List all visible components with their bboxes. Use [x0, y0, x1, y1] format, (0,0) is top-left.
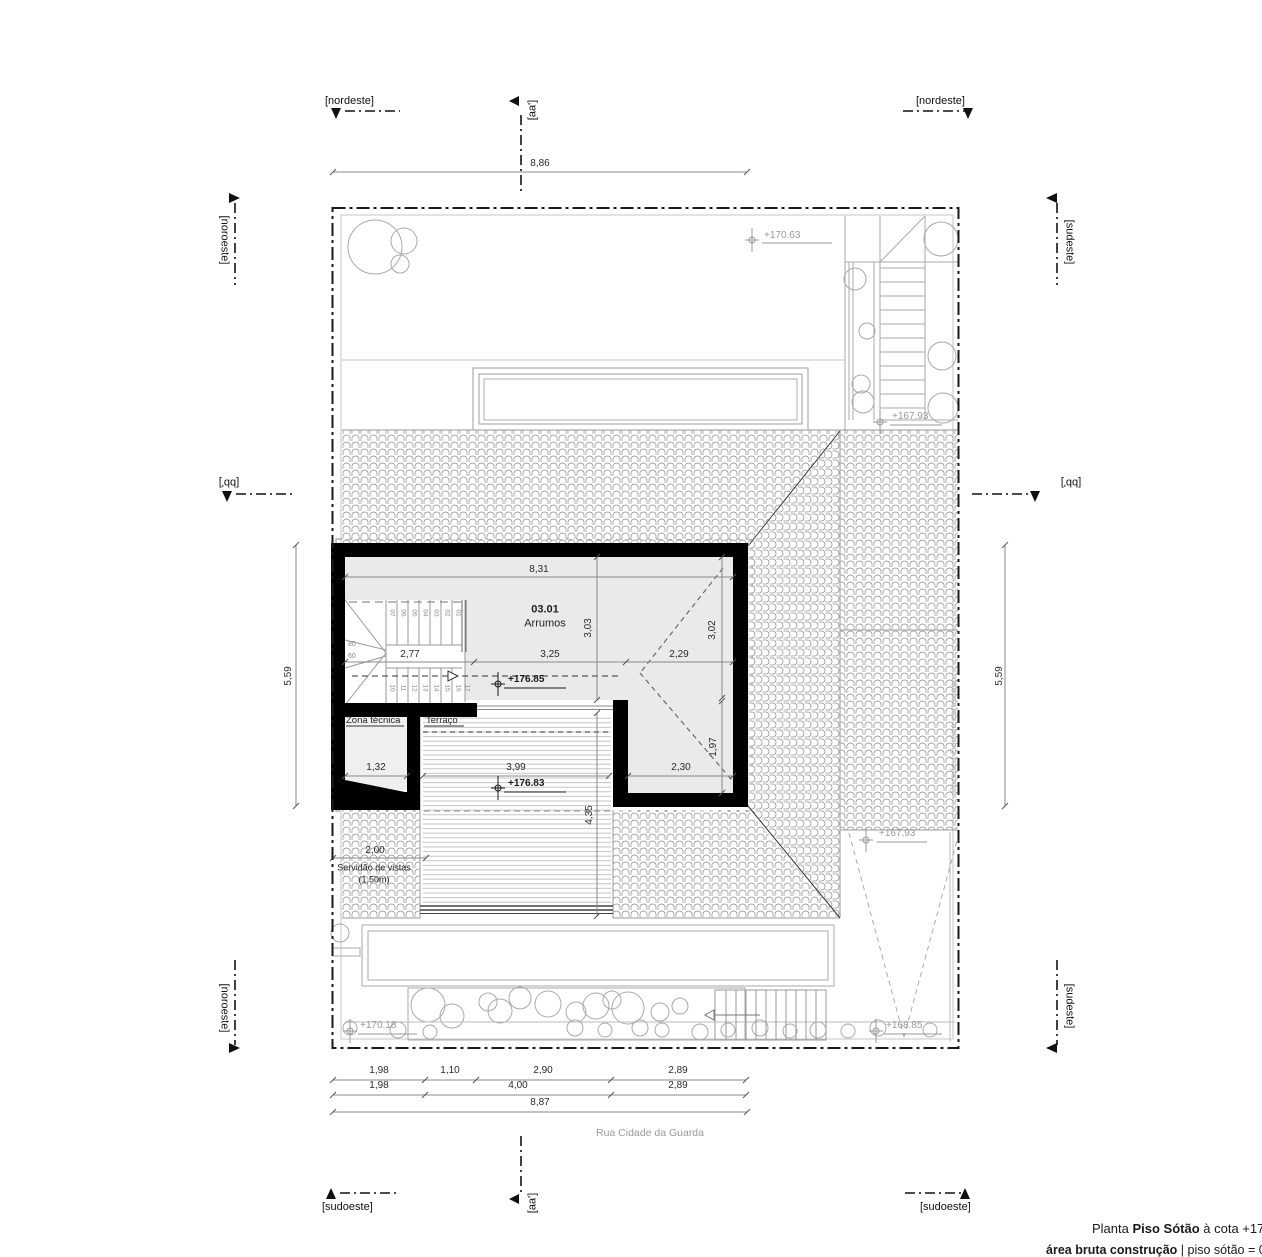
- drawing-title-suffix: à cota +17: [1200, 1221, 1262, 1236]
- stair-step-12: 12: [410, 684, 417, 691]
- section-label-aa-bottom: [aa']: [528, 1193, 539, 1213]
- stair-step-17: 17: [463, 684, 470, 691]
- dim-street-r1-4: 2,89: [668, 1066, 687, 1076]
- dim-lower-1: 1,32: [366, 763, 385, 773]
- section-label-noroeste-bottom-left: [noroeste]: [219, 984, 230, 1033]
- dim-storage-depth-right: 3,02: [708, 620, 718, 639]
- section-label-nordeste-top-left: [nordeste]: [325, 96, 374, 107]
- drawing-area-note: área bruta construção | piso sótão = 03: [1046, 1243, 1262, 1257]
- dim-lower-2: 3,99: [506, 763, 525, 773]
- level-east-yard: +167.93: [879, 829, 915, 839]
- easement-note-line2: (1,50m): [358, 876, 389, 885]
- dim-site-width-top: 8,86: [530, 159, 549, 169]
- level-se-front: +168.85: [886, 1021, 922, 1031]
- exterior-stair-northeast: [844, 216, 958, 430]
- courtyard-void: [473, 368, 808, 430]
- dim-street-r1-2: 1,10: [440, 1066, 459, 1076]
- level-terrace: +176.83: [508, 779, 544, 789]
- driveway-ramp: [849, 833, 959, 1037]
- stair-step-14: 14: [432, 684, 439, 691]
- section-label-sudoeste-bottom-right: [sudoeste]: [920, 1202, 971, 1213]
- stair-step-07: 07: [388, 609, 395, 616]
- level-storage: +176.85: [508, 675, 544, 685]
- dim-site-depth-right: 5,59: [995, 666, 1005, 685]
- stair-step-13: 13: [421, 684, 428, 691]
- stair-width-60: 60: [348, 653, 356, 660]
- dim-storage-depth: 3,03: [584, 618, 594, 637]
- front-exterior-stair: [705, 990, 826, 1040]
- section-label-noroeste-top-left: [noroeste]: [219, 216, 230, 265]
- drawing-title: Planta Piso Sótão à cota +17: [1092, 1221, 1262, 1236]
- stair-step-15: 15: [443, 684, 450, 691]
- dim-street-r1-1: 1,98: [369, 1066, 388, 1076]
- dim-street-r2-2: 4,00: [508, 1081, 527, 1091]
- stair-step-11: 11: [399, 685, 406, 692]
- fire-wall-note: Parede | Cortina corta-fogo: [949, 677, 958, 793]
- dim-mid-2: 3,25: [540, 650, 559, 660]
- dim-lower-3: 2,30: [671, 763, 690, 773]
- stair-step-16: 16: [454, 684, 461, 691]
- section-label-aa-top: [aa']: [528, 100, 539, 120]
- dim-street-r2-3: 2,89: [668, 1081, 687, 1091]
- stair-step-06: 06: [399, 609, 406, 616]
- dim-street-total: 8,87: [530, 1098, 549, 1108]
- room-name: Arrumos: [524, 619, 566, 630]
- stair-step-02: 02: [443, 609, 450, 616]
- dim-site-depth-left: 5,59: [284, 666, 294, 685]
- section-label-nordeste-top-right: [nordeste]: [916, 96, 965, 107]
- stair-step-01: 01: [454, 609, 461, 616]
- dim-building-width: 8,31: [529, 565, 548, 575]
- drawing-title-prefix: Planta: [1092, 1221, 1132, 1236]
- dim-mid-1: 2,77: [400, 650, 419, 660]
- drawing-title-name: Piso Sótão: [1132, 1221, 1199, 1236]
- easement-note-line1: Servidão de vistas: [337, 864, 411, 873]
- stair-width-80: 80: [348, 641, 356, 648]
- dim-terrace-depth: 4,35: [585, 805, 595, 824]
- drawing-area-label: área bruta construção: [1046, 1243, 1177, 1257]
- level-sw-front: +170.18: [360, 1021, 396, 1031]
- dim-street-r2-1: 1,98: [369, 1081, 388, 1091]
- section-label-bb-left: [bb']: [219, 477, 239, 488]
- level-ne-stair: +167.93: [892, 412, 928, 422]
- plan-linework: [0, 0, 1262, 1256]
- stair-step-05: 05: [410, 609, 417, 616]
- street-name: Rua Cidade da Guarda: [596, 1128, 704, 1139]
- drawing-area-value: | piso sótão = 03: [1177, 1243, 1262, 1257]
- section-label-sudoeste-bottom-left: [sudoeste]: [322, 1202, 373, 1213]
- stair-step-10: 10: [388, 684, 395, 691]
- dim-easement: 2,00: [365, 846, 384, 856]
- room-terrace-label: Terraço: [426, 716, 458, 726]
- stair-step-03: 03: [432, 609, 439, 616]
- floor-plan-sheet: [nordeste] [nordeste] [aa'] [noroeste] […: [0, 0, 1262, 1256]
- room-technical-label: Zona técnica: [346, 716, 400, 726]
- section-label-bb-right: [bb']: [1061, 477, 1081, 488]
- dim-street-r1-3: 2,90: [533, 1066, 552, 1076]
- room-number: 03.01: [531, 605, 559, 616]
- section-label-sudeste-bottom-right: [sudeste]: [1064, 984, 1075, 1029]
- dim-mid-3: 2,29: [669, 650, 688, 660]
- stair-step-04: 04: [421, 609, 428, 616]
- level-nw-garden: +170.63: [764, 231, 800, 241]
- dim-terrace-right: 1,97: [709, 737, 719, 756]
- section-label-sudeste-top-right: [sudeste]: [1064, 220, 1075, 265]
